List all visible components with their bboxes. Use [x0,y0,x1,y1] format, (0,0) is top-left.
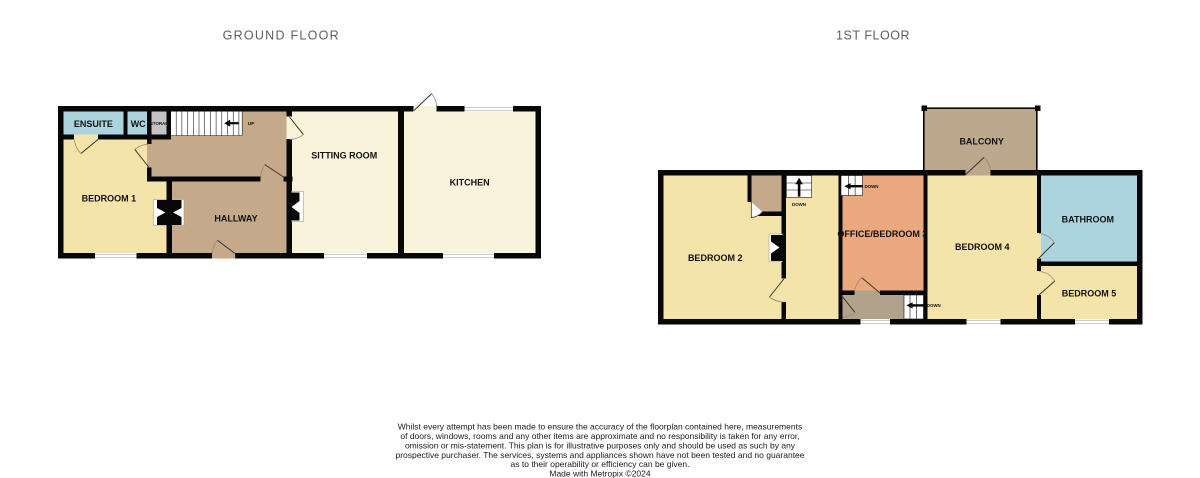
svg-text:1ST FLOOR: 1ST FLOOR [836,28,910,42]
svg-text:DOWN: DOWN [865,184,879,189]
svg-text:BEDROOM 2: BEDROOM 2 [688,253,743,263]
svg-text:KITCHEN: KITCHEN [450,178,490,188]
svg-text:ENSUITE: ENSUITE [74,119,113,129]
svg-text:GROUND FLOOR: GROUND FLOOR [223,29,339,43]
svg-text:BEDROOM 4: BEDROOM 4 [955,242,1010,252]
svg-text:OFFICE/BEDROOM 3: OFFICE/BEDROOM 3 [837,229,927,239]
svg-text:BATHROOM: BATHROOM [1062,215,1114,225]
svg-text:HALLWAY: HALLWAY [214,213,257,223]
svg-text:BEDROOM 1: BEDROOM 1 [82,193,137,203]
svg-text:BEDROOM 5: BEDROOM 5 [1062,288,1117,298]
svg-text:STORAG: STORAG [150,121,169,126]
svg-text:WC: WC [131,119,146,129]
svg-text:UP: UP [248,121,254,126]
svg-text:BALCONY: BALCONY [959,137,1004,147]
svg-text:DOWN: DOWN [792,202,806,207]
svg-text:SITTING ROOM: SITTING ROOM [311,151,377,161]
svg-text:DOWN: DOWN [927,303,941,308]
svg-text:Made with Metropix ©2024: Made with Metropix ©2024 [549,469,651,478]
